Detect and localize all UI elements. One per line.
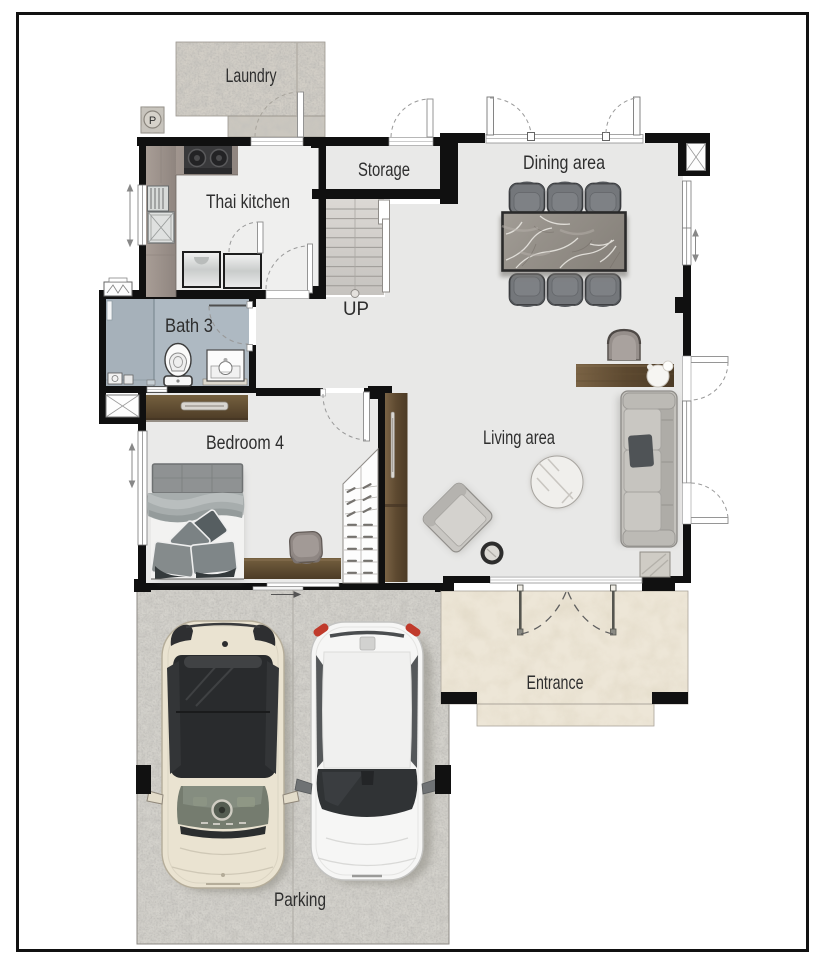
svg-text:Dining area: Dining area <box>523 152 605 174</box>
svg-text:Thai kitchen: Thai kitchen <box>206 191 290 213</box>
svg-text:Bedroom 4: Bedroom 4 <box>206 432 284 454</box>
svg-text:P: P <box>149 115 156 127</box>
svg-text:Entrance: Entrance <box>527 672 584 694</box>
svg-text:Living area: Living area <box>483 427 555 449</box>
svg-text:Parking: Parking <box>274 889 326 911</box>
svg-text:Bath 3: Bath 3 <box>165 315 213 337</box>
svg-text:UP: UP <box>343 298 369 320</box>
svg-text:Laundry: Laundry <box>226 65 277 87</box>
svg-text:Storage: Storage <box>358 159 410 181</box>
